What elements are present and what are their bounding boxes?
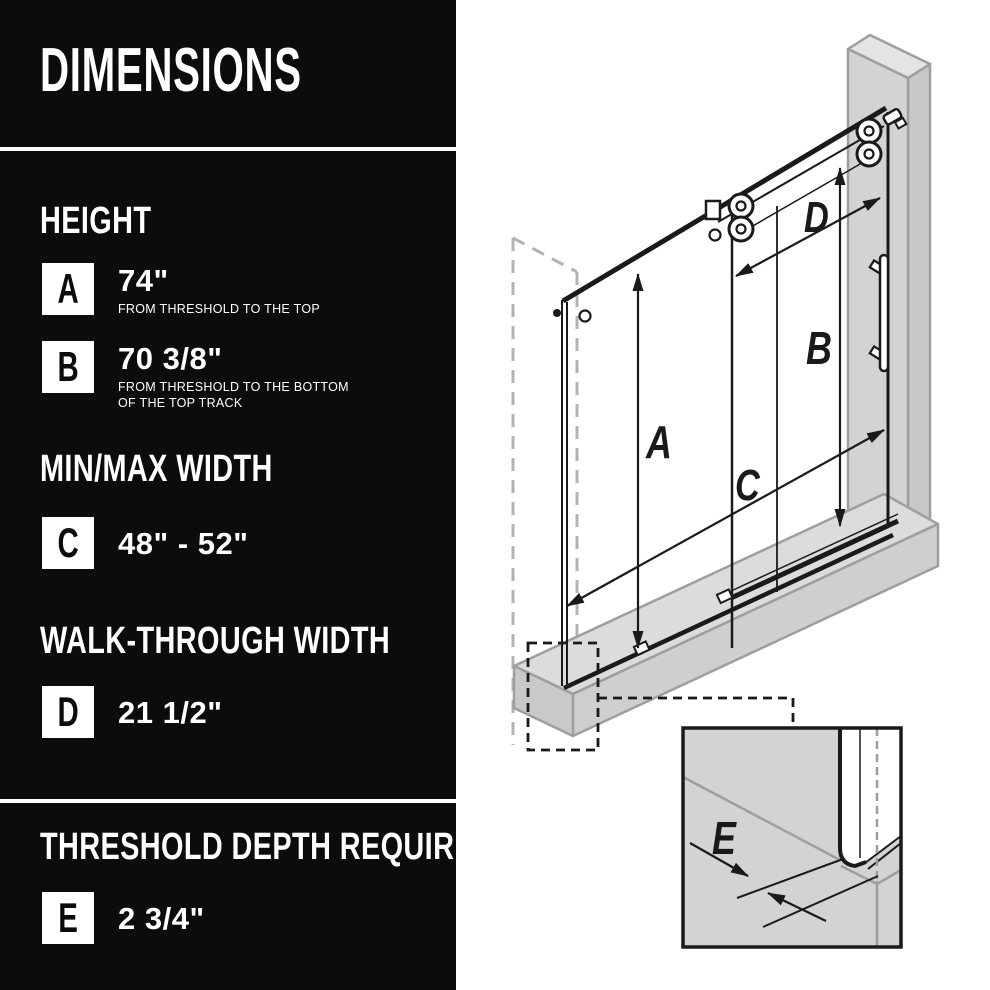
dimension-value-e: 2 3/4" <box>118 903 205 934</box>
dimension-value-b: 70 3/8" <box>118 343 349 374</box>
dimension-text-b: 70 3/8" FROM THRESHOLD TO THE BOTTOM OF … <box>118 341 349 411</box>
dimension-value-a: 74" <box>118 265 320 296</box>
page-title: DIMENSIONS <box>40 40 443 102</box>
dimension-desc-b-line1: FROM THRESHOLD TO THE BOTTOM <box>118 380 349 395</box>
shower-door-isometric-diagram: A B C D E <box>456 0 990 990</box>
label-a: A <box>645 417 672 468</box>
label-b: B <box>806 323 832 374</box>
roller-wheel <box>857 142 881 166</box>
dimension-row-c: C 48" - 52" <box>42 517 248 569</box>
dimension-row-b: B 70 3/8" FROM THRESHOLD TO THE BOTTOM O… <box>42 341 349 411</box>
dimension-text-c: 48" - 52" <box>118 517 248 569</box>
section-heading-minmax-width: MIN/MAX WIDTH <box>40 450 346 488</box>
dimension-text-d: 21 1/2" <box>118 686 222 738</box>
section-heading-height: HEIGHT <box>40 202 187 240</box>
label-c: C <box>735 461 760 510</box>
dimension-row-d: D 21 1/2" <box>42 686 222 738</box>
panel-hole <box>580 311 591 322</box>
wall-column-side-face <box>908 64 930 560</box>
wall-fastener <box>553 309 561 317</box>
letter-badge-e: E <box>42 892 94 944</box>
label-e: E <box>712 813 737 864</box>
label-d: D <box>804 193 829 242</box>
dimension-desc-b-line2: OF THE TOP TRACK <box>118 396 349 411</box>
letter-badge-b: B <box>42 341 94 393</box>
panel-hole <box>710 230 721 241</box>
fixed-panel-bottom-edge <box>564 535 893 688</box>
dimension-value-c: 48" - 52" <box>118 528 248 559</box>
letter-badge-a: A <box>42 263 94 315</box>
divider-top <box>0 147 456 151</box>
sidebar: DIMENSIONS HEIGHT A 74" FROM THRESHOLD T… <box>0 0 456 990</box>
dimension-row-e: E 2 3/4" <box>42 892 205 944</box>
letter-badge-c: C <box>42 517 94 569</box>
dimension-text-a: 74" FROM THRESHOLD TO THE TOP <box>118 263 320 317</box>
roller-wheel <box>729 194 753 218</box>
letter-badge-d: D <box>42 686 94 738</box>
dimension-desc-a: FROM THRESHOLD TO THE TOP <box>118 302 320 317</box>
dimension-row-a: A 74" FROM THRESHOLD TO THE TOP <box>42 263 320 317</box>
dimension-value-d: 21 1/2" <box>118 697 222 728</box>
divider-bottom <box>0 799 456 803</box>
dimension-text-e: 2 3/4" <box>118 892 205 944</box>
handle-bar <box>880 255 888 371</box>
dimensions-infographic: DIMENSIONS HEIGHT A 74" FROM THRESHOLD T… <box>0 0 990 990</box>
roller-wheel <box>729 217 753 241</box>
roller-wheel <box>857 119 881 143</box>
track-bar <box>563 108 886 301</box>
threshold-detail-inset: E <box>683 728 901 947</box>
track-bracket <box>706 201 720 219</box>
section-heading-walkthrough: WALK-THROUGH WIDTH <box>40 622 501 660</box>
page-title-text: DIMENSIONS <box>40 40 302 102</box>
